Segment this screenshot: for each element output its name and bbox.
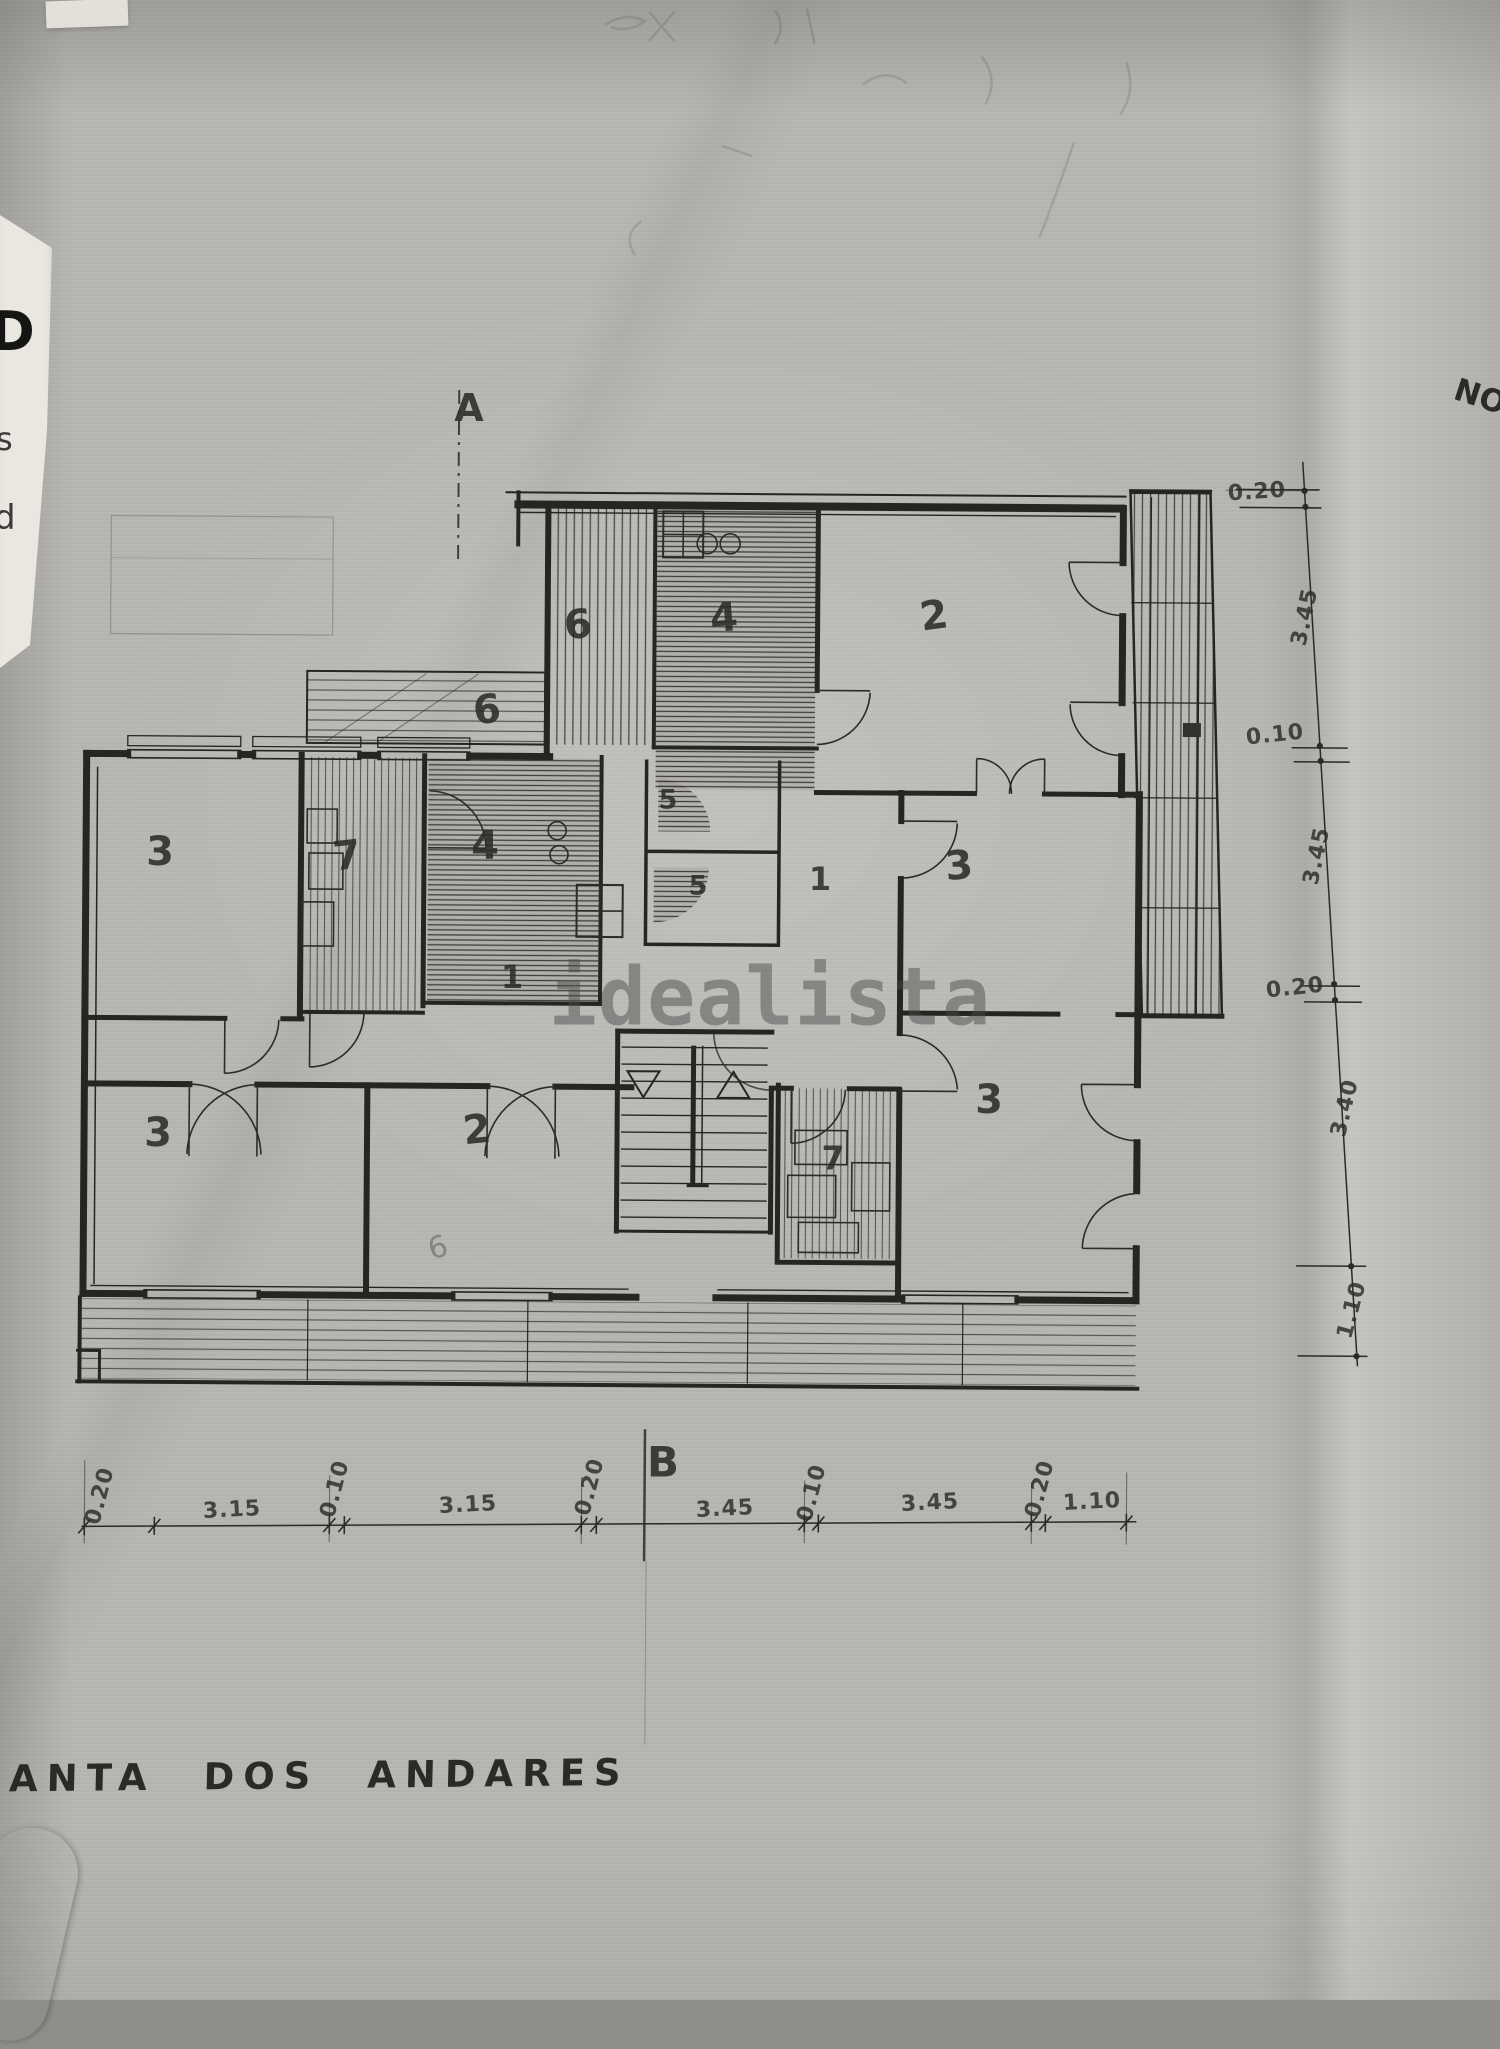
watermark: idealista — [549, 951, 991, 1044]
room-label: 5 — [659, 785, 678, 816]
room-label: 3 — [975, 1077, 1003, 1123]
room-label: 1 — [501, 958, 523, 996]
section-marker-a: A — [454, 386, 483, 430]
dim-label: 0.20 — [1227, 477, 1287, 506]
section-marker-b: B — [647, 1438, 679, 1487]
room-label: 5 — [689, 871, 708, 902]
room-label: 1 — [809, 860, 831, 898]
room-label: 3 — [144, 1110, 172, 1156]
room-label: 6 — [562, 601, 594, 650]
room-label: 6 — [471, 686, 503, 734]
dim-label: 3.45 — [900, 1489, 960, 1517]
room-label: 3 — [943, 842, 975, 890]
room-label: 4 — [471, 823, 499, 869]
walls — [77, 483, 1225, 1389]
dim-label: 1.10 — [1062, 1488, 1122, 1516]
room-label: 4 — [709, 594, 740, 642]
pencil-scribbles — [603, 7, 1131, 259]
room-label: 2 — [461, 1106, 493, 1155]
dim-label: 3.15 — [438, 1491, 498, 1519]
room-label: 7 — [331, 832, 363, 881]
dim-label: 3.15 — [202, 1496, 262, 1524]
edge-fragment: s — [0, 420, 13, 458]
room-label: 7 — [822, 1139, 845, 1178]
room-label: 3 — [146, 829, 174, 875]
edge-fragment: D — [0, 300, 35, 363]
dim-label: 3.45 — [695, 1495, 755, 1523]
edge-fragment: d — [0, 498, 16, 538]
plan-title: PLANTA DOS ANDARES — [0, 1751, 630, 1801]
staircase — [620, 1045, 767, 1218]
